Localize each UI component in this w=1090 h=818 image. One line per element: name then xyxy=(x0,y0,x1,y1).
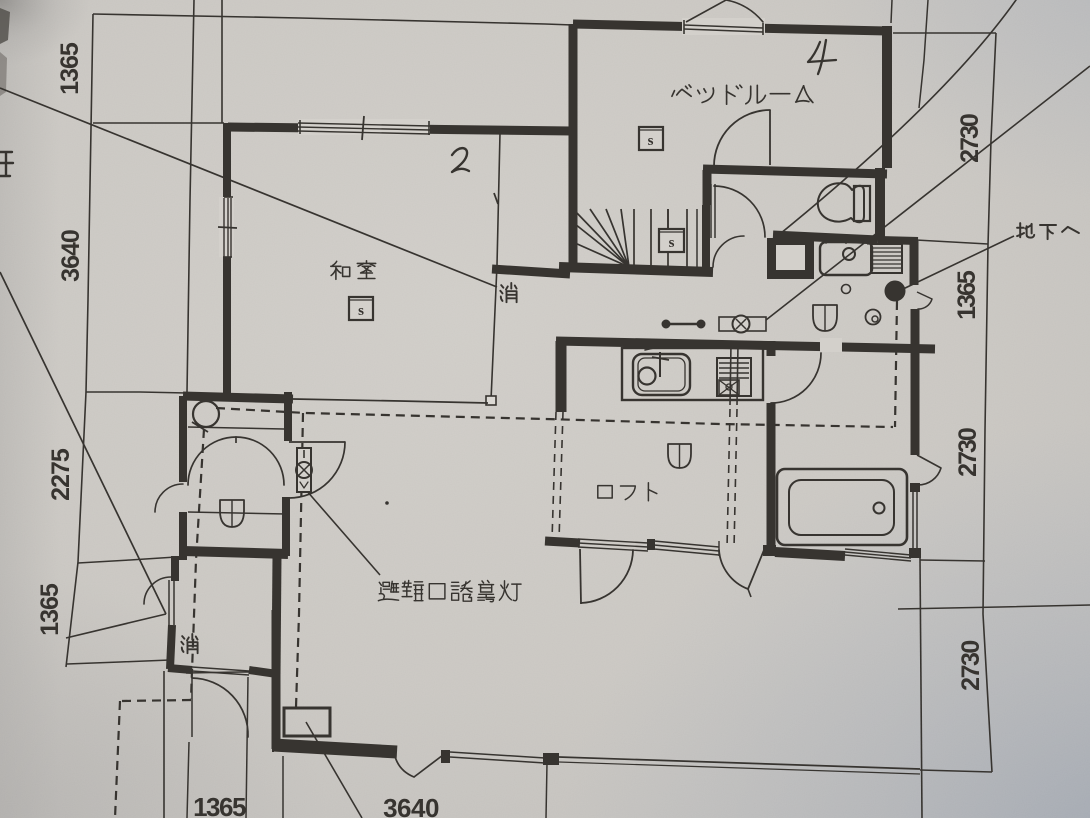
svg-text:1365: 1365 xyxy=(36,583,64,636)
svg-text:2275: 2275 xyxy=(47,448,75,501)
svg-text:2730: 2730 xyxy=(956,114,984,163)
svg-text:1365: 1365 xyxy=(193,792,246,818)
svg-text:s: s xyxy=(669,235,675,251)
svg-text:3640: 3640 xyxy=(57,230,85,282)
svg-text:1365: 1365 xyxy=(953,270,981,320)
svg-text:2730: 2730 xyxy=(957,641,985,691)
svg-text:1365: 1365 xyxy=(56,42,84,95)
svg-text:2730: 2730 xyxy=(954,428,982,477)
svg-text:s: s xyxy=(648,133,654,149)
svg-text:s: s xyxy=(358,303,364,319)
svg-text:3640: 3640 xyxy=(383,793,439,818)
